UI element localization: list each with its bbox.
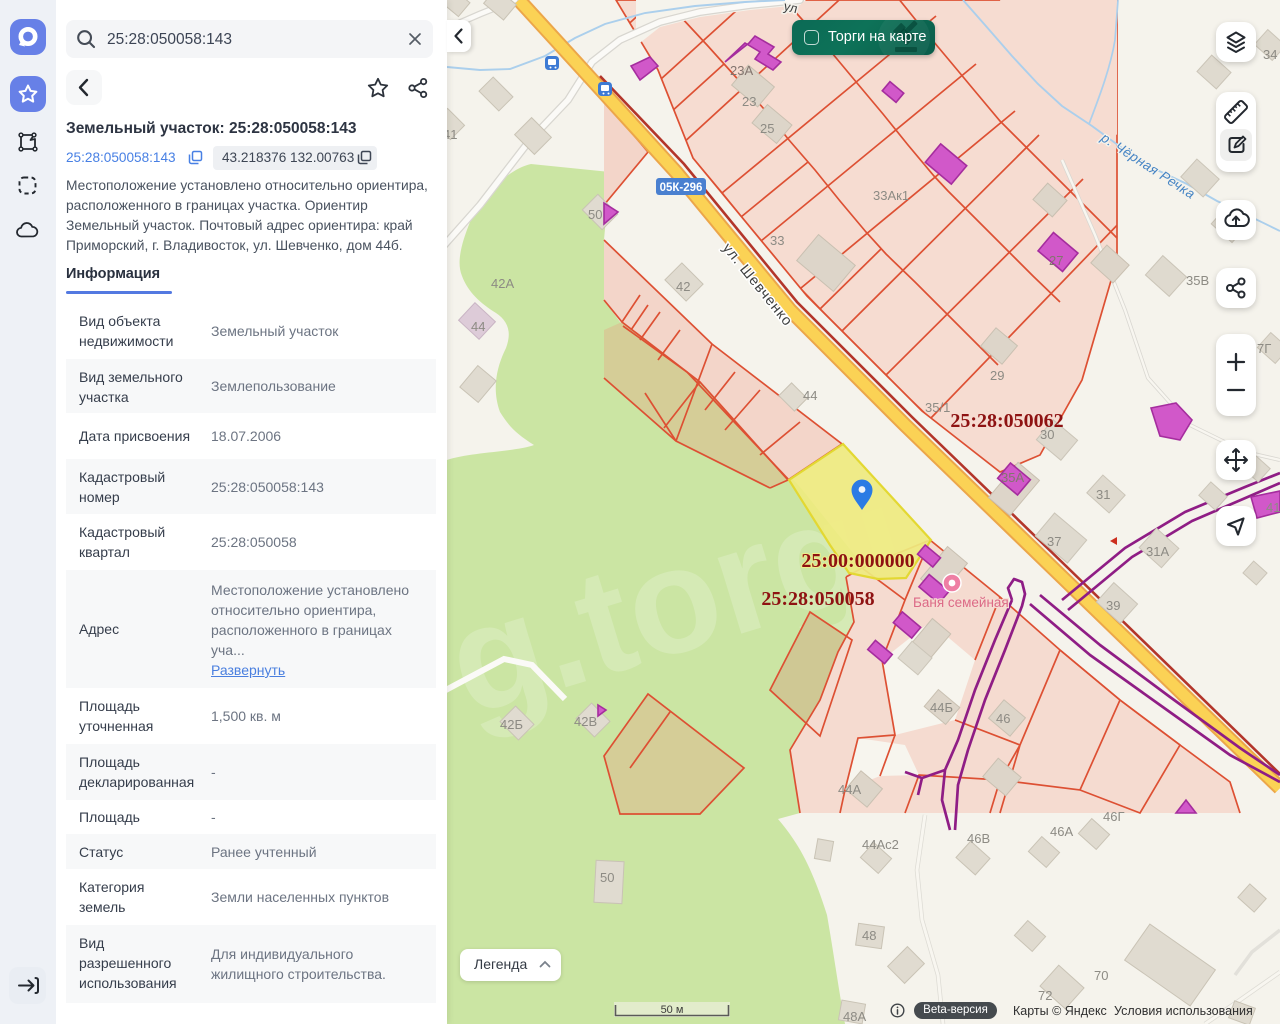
svg-text:7Г: 7Г <box>1257 341 1271 356</box>
svg-text:44Б: 44Б <box>930 700 953 715</box>
svg-text:42Б: 42Б <box>500 717 523 732</box>
svg-text:25: 25 <box>760 121 774 136</box>
svg-text:46В: 46В <box>967 831 990 846</box>
svg-text:23А: 23А <box>730 63 753 78</box>
svg-text:41: 41 <box>1266 500 1280 515</box>
svg-text:25:28:050062: 25:28:050062 <box>950 410 1063 432</box>
svg-text:05К-296: 05К-296 <box>660 182 703 194</box>
svg-text:42В: 42В <box>574 714 597 729</box>
svg-text:29: 29 <box>990 368 1004 383</box>
svg-text:39: 39 <box>1106 598 1120 613</box>
svg-text:46: 46 <box>996 711 1010 726</box>
svg-text:34: 34 <box>1263 47 1277 62</box>
svg-text:37: 37 <box>1047 534 1061 549</box>
svg-text:33: 33 <box>770 233 784 248</box>
svg-text:31А: 31А <box>1146 544 1169 559</box>
svg-text:25:00:000000: 25:00:000000 <box>801 550 914 572</box>
svg-text:42А: 42А <box>491 276 514 291</box>
svg-text:72: 72 <box>1038 988 1052 1003</box>
svg-text:50: 50 <box>600 870 614 885</box>
svg-text:41: 41 <box>447 127 457 142</box>
svg-text:35/1: 35/1 <box>925 400 950 415</box>
svg-text:50 м: 50 м <box>661 1004 684 1016</box>
svg-text:Баня семейная: Баня семейная <box>913 595 1009 610</box>
svg-text:44: 44 <box>471 319 485 334</box>
svg-text:46Г: 46Г <box>1103 809 1125 824</box>
svg-text:35А: 35А <box>1001 470 1024 485</box>
svg-text:31: 31 <box>1096 487 1110 502</box>
svg-text:23: 23 <box>742 94 756 109</box>
svg-text:42: 42 <box>676 279 690 294</box>
svg-text:48А: 48А <box>843 1009 866 1024</box>
svg-text:46А: 46А <box>1050 824 1073 839</box>
svg-text:44А: 44А <box>838 782 861 797</box>
svg-text:44Ас2: 44Ас2 <box>862 837 899 852</box>
svg-text:44: 44 <box>803 388 817 403</box>
svg-text:35В: 35В <box>1186 273 1209 288</box>
svg-text:48: 48 <box>862 928 876 943</box>
svg-text:27: 27 <box>1049 253 1063 268</box>
svg-text:70: 70 <box>1094 968 1108 983</box>
svg-text:50: 50 <box>588 207 602 222</box>
svg-text:25:28:050058: 25:28:050058 <box>761 588 874 610</box>
svg-text:33Ак1: 33Ак1 <box>873 188 909 203</box>
